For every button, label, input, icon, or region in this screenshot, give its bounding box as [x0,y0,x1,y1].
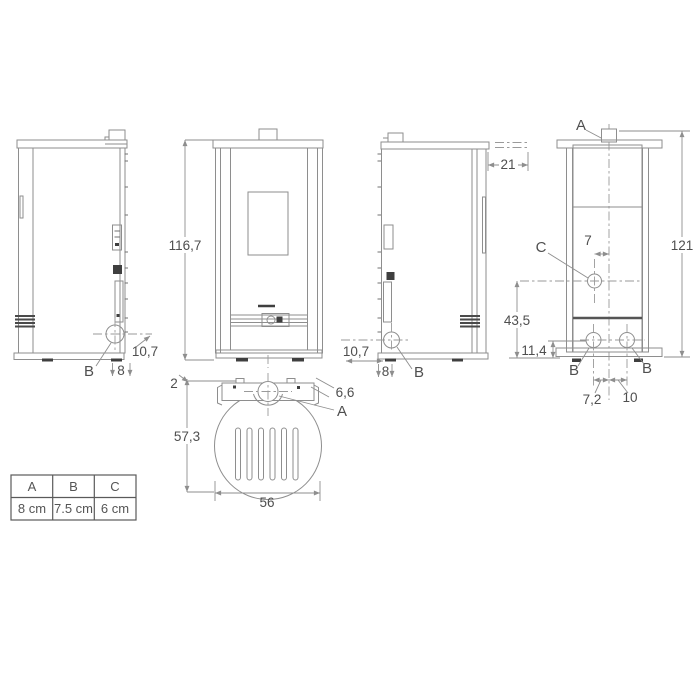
hole-b-label: B [84,363,94,380]
door-handle [113,265,122,274]
top-plate [381,142,489,149]
door-edge [384,282,392,322]
foot [111,359,122,362]
lower-band [231,314,307,327]
foot [42,359,53,362]
foot [236,358,248,362]
rear-panel [573,145,642,352]
right-side-panel [643,148,649,352]
side-glass-strip [20,196,23,218]
legend-value-a: 8 cm [18,501,46,516]
front-edge-ticks [378,154,382,332]
legend-value-b: 7.5 cm [54,501,93,516]
legend-header-b: B [69,479,78,494]
left-side-view: 10,7 8 B [14,130,158,380]
foot [452,359,463,362]
front-view [213,129,323,368]
flue-stub [259,129,277,140]
dim-c-height: 43,5 [504,313,530,328]
door-window [248,192,288,255]
left-side-panel [567,148,573,352]
right-side-view: 21 [341,133,528,381]
flue-label-a: A [576,117,586,134]
dim-total-height: 121 [671,238,694,253]
control-panel [384,225,393,249]
foot [385,359,396,362]
legend-table: A B C 8 cm 7.5 cm 6 cm [11,475,136,520]
dim-base: 8 [382,364,390,379]
rear-view: A 7 C 121 43,5 11,4 [500,117,698,407]
foot [292,358,304,362]
hole-b-left-label: B [569,362,579,379]
dim-c-to-center: 7 [584,233,592,248]
dim-b-right-to-center: 10 [622,390,637,405]
dim-b-height: 11,4 [521,343,547,358]
flue-stub [388,133,403,142]
dim-depth: 57,3 [174,429,200,444]
side-glass-strip [483,197,486,253]
top-view: 2 6,6 A 57,3 56 [168,373,354,510]
base-plinth [216,350,322,358]
stove-dimension-drawing: 10,7 8 B 116,7 [0,0,700,700]
front-height-dimension: 116,7 [163,140,214,360]
flue-label-a: A [337,403,347,420]
dim-flue-depth: 10,7 [132,344,158,359]
base-plinth [14,353,124,360]
dim-b-left-to-center: 7,2 [583,392,602,407]
legend-header-a: A [28,479,37,494]
dim-base: 8 [117,363,125,378]
dim-width: 56 [259,495,274,510]
dim-flue-offset: 6,6 [336,385,355,400]
dim-rear-gap: 2 [170,376,178,391]
base-plinth [378,353,488,359]
legend-value-c: 6 cm [101,501,129,516]
dim-flue-center: 21 [500,157,515,172]
door-handle [387,272,395,280]
top-grille [236,428,299,480]
technical-drawing-page: 10,7 8 B 116,7 [0,0,700,700]
dim-flue-depth: 10,7 [343,344,369,359]
flue-stub [109,130,125,140]
hole-b-label: B [414,364,424,381]
hole-c-label: C [536,239,547,256]
hole-b-right-label: B [642,360,652,377]
dim-height: 116,7 [169,238,202,253]
legend-header-c: C [110,479,119,494]
top-plate [213,140,323,148]
